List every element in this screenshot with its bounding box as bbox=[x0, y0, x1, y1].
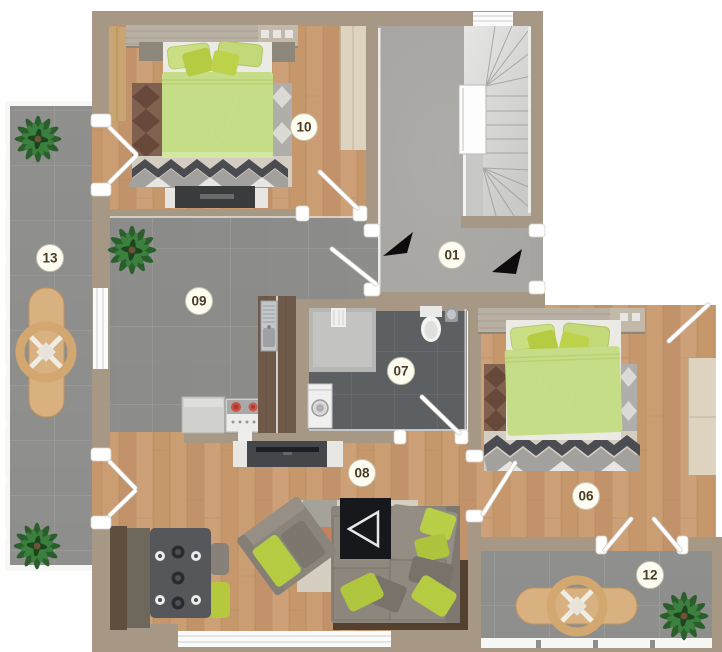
svg-text:08: 08 bbox=[354, 466, 370, 481]
svg-text:07: 07 bbox=[393, 364, 408, 379]
svg-text:10: 10 bbox=[296, 120, 311, 135]
svg-text:13: 13 bbox=[42, 251, 58, 266]
svg-text:09: 09 bbox=[191, 294, 206, 309]
svg-text:01: 01 bbox=[444, 248, 460, 263]
svg-text:12: 12 bbox=[642, 568, 657, 583]
svg-text:06: 06 bbox=[578, 489, 594, 504]
